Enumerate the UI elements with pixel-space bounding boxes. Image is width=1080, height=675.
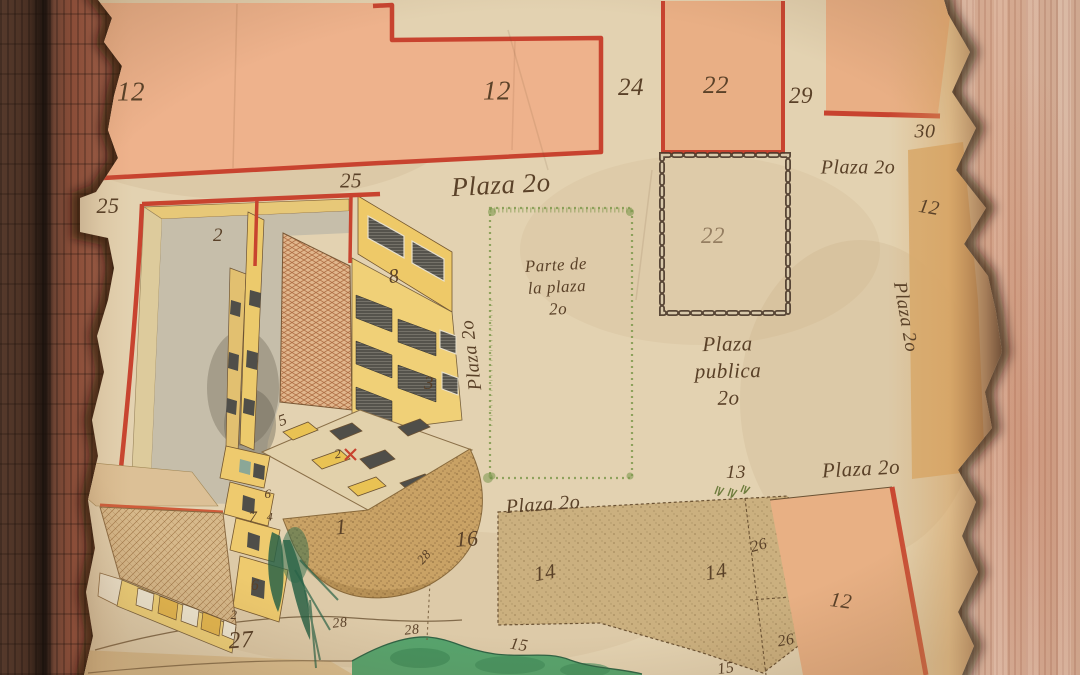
map-drawing — [0, 0, 1080, 675]
framed-historical-map-photo: 1212242229301225252228352674162272828281… — [0, 0, 1080, 675]
burnt-edge-right — [888, 0, 1010, 675]
